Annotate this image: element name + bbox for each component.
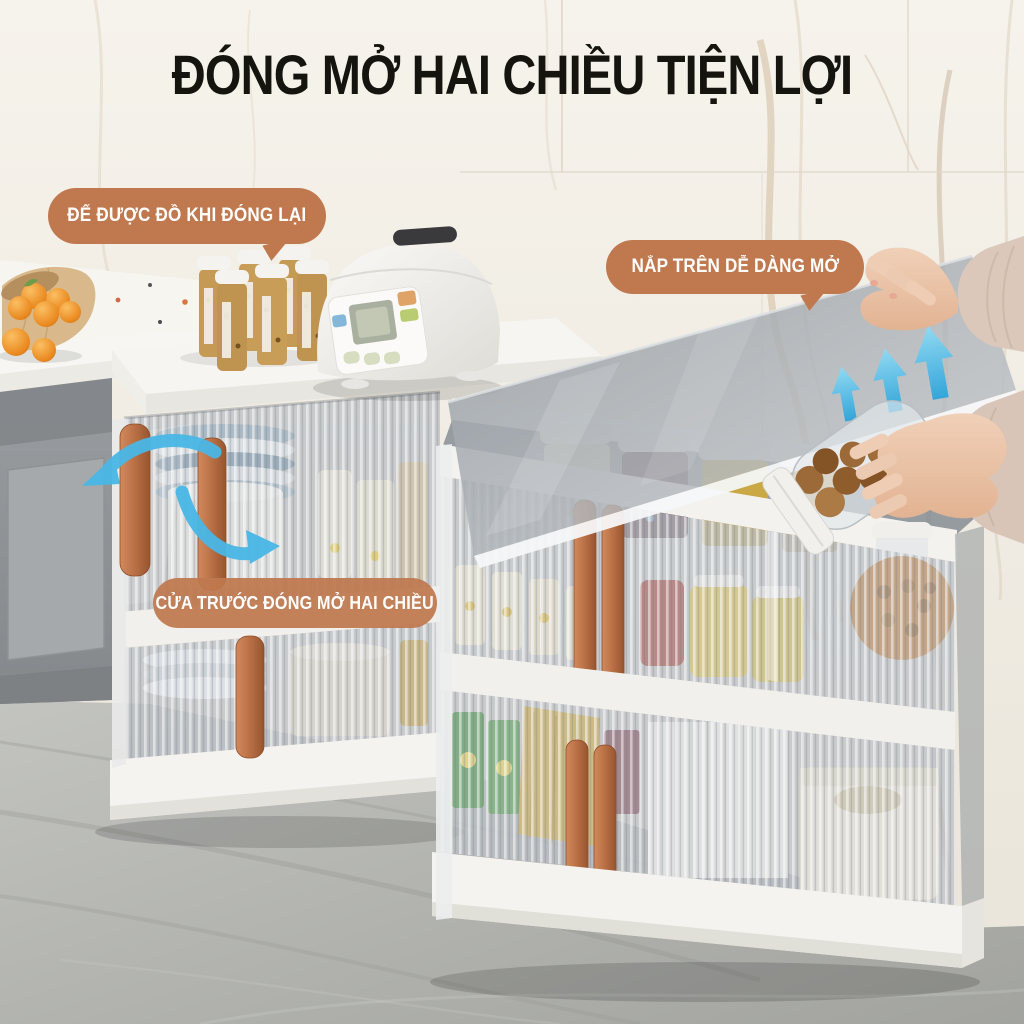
jar [215, 270, 249, 371]
callout-front-door-text: CỬA TRƯỚC ĐÓNG MỞ HAI CHIỀU [156, 593, 434, 614]
jar [255, 264, 289, 365]
callout-closed-storage-text: ĐỂ ĐƯỢC ĐỒ KHI ĐÓNG LẠI [67, 205, 306, 227]
right-frame-post [436, 444, 452, 920]
door-handle [602, 505, 624, 697]
page-title-text: ĐÓNG MỞ HAI CHIỀU TIỆN LỢI [172, 42, 852, 107]
callout-top-lid: NẮP TRÊN DỄ DÀNG MỞ [606, 240, 864, 294]
callout-closed-storage: ĐỂ ĐƯỢC ĐỒ KHI ĐÓNG LẠI [48, 188, 326, 244]
product-poster: ĐÓNG MỞ HAI CHIỀU TIỆN LỢI ĐỂ ĐƯỢC ĐỒ KH… [0, 0, 1024, 1024]
scene-graphic [0, 0, 1024, 1024]
door-handle [198, 438, 226, 590]
callout-top-lid-text: NẮP TRÊN DỄ DÀNG MỞ [631, 256, 839, 278]
snack-jars [180, 246, 330, 371]
cooker-control-panel [327, 286, 429, 376]
door-handle [236, 636, 264, 758]
callout-front-door: CỬA TRƯỚC ĐÓNG MỞ HAI CHIỀU [153, 578, 437, 628]
page-title: ĐÓNG MỞ HAI CHIỀU TIỆN LỢI [0, 42, 1024, 107]
base-cabinet [0, 378, 112, 704]
